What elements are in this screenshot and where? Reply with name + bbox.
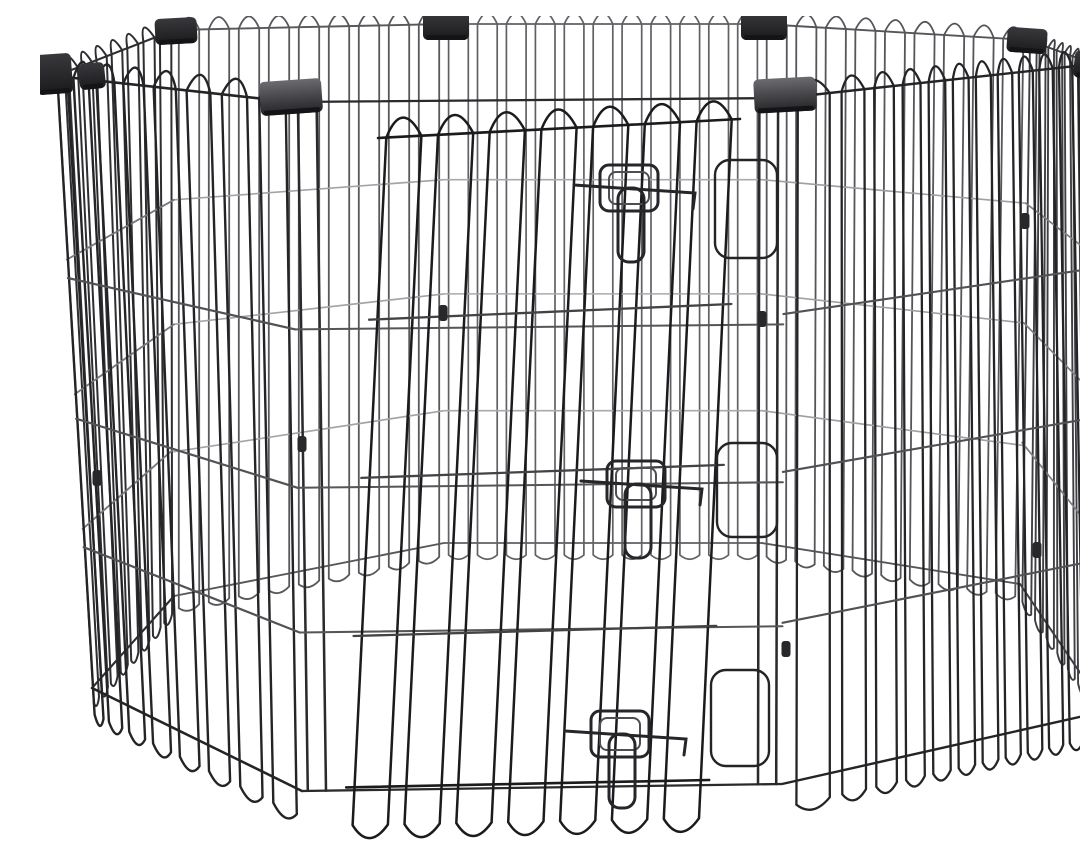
panel-back-center-arch [709, 16, 729, 24]
panel-front-right-bottom-loop [1049, 721, 1064, 755]
corner-cap-back-left [154, 17, 197, 45]
panel-front-frame-stile [317, 102, 326, 791]
wire-clip [1033, 542, 1042, 558]
wire-clip [93, 470, 102, 486]
panel-front-left-wire [210, 93, 229, 755]
wire-clip [758, 311, 767, 327]
panel-front-right-wire [894, 86, 897, 758]
panel-back-center-arch [622, 16, 642, 24]
panel-door-wire [649, 122, 680, 781]
panel-front-right-bottom-loop [959, 741, 976, 775]
panel-door-bottom-loop [664, 780, 701, 832]
panel-front-right-bottom-loop [876, 758, 897, 793]
panel-door-wire [406, 135, 438, 786]
panel-front-right-wire [842, 92, 843, 771]
panel-back-center-bottom-loop [680, 543, 700, 559]
corner-cap-back-center-left-lip [426, 35, 466, 40]
corner-cap-back-center-right [741, 16, 787, 40]
panel-back-right-wire [910, 33, 915, 566]
panel-door-arch [490, 112, 525, 132]
panel-door-wire [390, 136, 422, 787]
panel-door-bottom-loop [405, 786, 442, 838]
panel-door-arch [645, 104, 680, 124]
panel-door-arch [386, 118, 421, 138]
panel-back-left-arch [269, 16, 289, 28]
panel-front-right-bottom-loop [933, 746, 951, 781]
panel-back-right-wire [958, 36, 964, 574]
panel-back-center-arch [506, 16, 526, 24]
panel-back-left-arch [359, 16, 379, 26]
panel-front-right-wire [945, 80, 950, 746]
corner-cap-far-left-2 [78, 62, 107, 91]
panel-door [346, 101, 740, 838]
panel-back-right-wire [843, 29, 846, 556]
corner-cap-back-center-right-lip [744, 35, 784, 40]
door-hinge-loop-bottom [711, 670, 769, 766]
door-hinge-loop-middle [717, 443, 777, 537]
corner-cap-far-left [40, 53, 73, 95]
panel-back-right-wire [824, 28, 826, 553]
wire-clip [1021, 213, 1030, 229]
panel-front-left-wire [187, 90, 209, 745]
panel-right-side-horizontal-wire [1022, 443, 1080, 543]
panel-back-center-bottom-loop [506, 543, 526, 559]
panel-front-frame-stile [758, 98, 759, 784]
panel-back-center-arch [564, 16, 584, 24]
panel-back-left-horizontal-wire [174, 180, 444, 200]
panel-back-right-wire [939, 35, 945, 571]
wire-clip [298, 436, 307, 452]
panel-front-right-wire [976, 77, 983, 739]
panel-back-center-bottom-loop [478, 543, 498, 559]
panel-door-wire [545, 128, 576, 784]
panel-door-wire [493, 130, 525, 784]
panel-front-frame-horizontal-wire [295, 324, 783, 329]
panel-back-center-arch [535, 16, 555, 24]
panel-front-right-bottom-rail [782, 711, 1080, 784]
panel-door-wire [458, 132, 490, 785]
panel-back-right-wire [853, 30, 856, 558]
panel-back-center-arch [680, 16, 700, 24]
door-hinge-loop-top [715, 160, 777, 258]
panel-back-right-horizontal-wire [762, 411, 1022, 446]
corner-cap-back-center-left [423, 16, 469, 40]
panel-back-center-bottom-loop [738, 543, 758, 559]
panel-front-right-bottom-loop [1005, 730, 1020, 764]
corner-cap-back-right [1006, 27, 1048, 55]
panel-front-left-wire [222, 94, 240, 760]
panel-back-left-arch [239, 16, 259, 28]
panel-front-right-bottom-loop [1027, 725, 1042, 759]
panel-back-left-arch [209, 17, 229, 29]
panel-door-bottom-loop [508, 783, 545, 835]
panel-back-left-arch [299, 16, 319, 27]
panel-back-left-arch [389, 16, 409, 25]
panel-back-center-bottom-loop [535, 543, 555, 559]
panel-front-right-wire [864, 89, 866, 765]
panel-door-bottom-loop [456, 784, 493, 836]
panel-door-wire [562, 127, 593, 783]
panel-door-top-rail [378, 119, 740, 138]
panel-front-right-bottom-loop [906, 752, 925, 787]
panel-front-right-wire [991, 75, 998, 735]
wire-clip [782, 641, 791, 657]
panel-back-center-arch [478, 16, 498, 24]
panel-front-right-bottom-loop [983, 735, 999, 769]
panel-back-center-bottom-loop [593, 543, 613, 559]
corner-cap-front-left [259, 78, 323, 116]
corner-cap-front-right [753, 76, 817, 113]
product-photo-pet-playpen [40, 16, 1080, 845]
panel-back-center-arch [651, 16, 671, 24]
panel-front-left-wire [286, 101, 297, 788]
panel-back-left-bottom-rail [174, 543, 444, 596]
panel-door-bottom-loop [353, 787, 390, 839]
door-latch-middle-handle [625, 484, 651, 558]
panel-door-arch [541, 110, 576, 130]
panel-door-arch [697, 101, 732, 121]
panel-back-center-arch [593, 16, 613, 24]
panel-back-left-horizontal-wire [174, 294, 444, 324]
panel-door-arch [593, 107, 628, 127]
panel-right-side [1020, 33, 1080, 723]
playpen-illustration [40, 16, 1080, 845]
panel-front-right-wire [921, 83, 925, 752]
panel-door-wire [701, 119, 732, 780]
panel-front-left-wire [73, 78, 107, 696]
panel-door-horizontal-wire [361, 465, 724, 478]
panel-back-right-wire [881, 31, 885, 562]
panel-door-bottom-loop [560, 782, 597, 834]
panel-front-right-bottom-loop [1069, 716, 1080, 750]
wire-clip [439, 305, 448, 321]
panel-back-left-top-rail [174, 24, 444, 30]
panel-front-right-wire [953, 80, 959, 745]
panel-back-left-horizontal-wire [174, 411, 444, 452]
panel-front-right-wire [797, 97, 798, 781]
panel-door-horizontal-wire [369, 304, 731, 320]
panel-back-left-arch [329, 16, 349, 27]
